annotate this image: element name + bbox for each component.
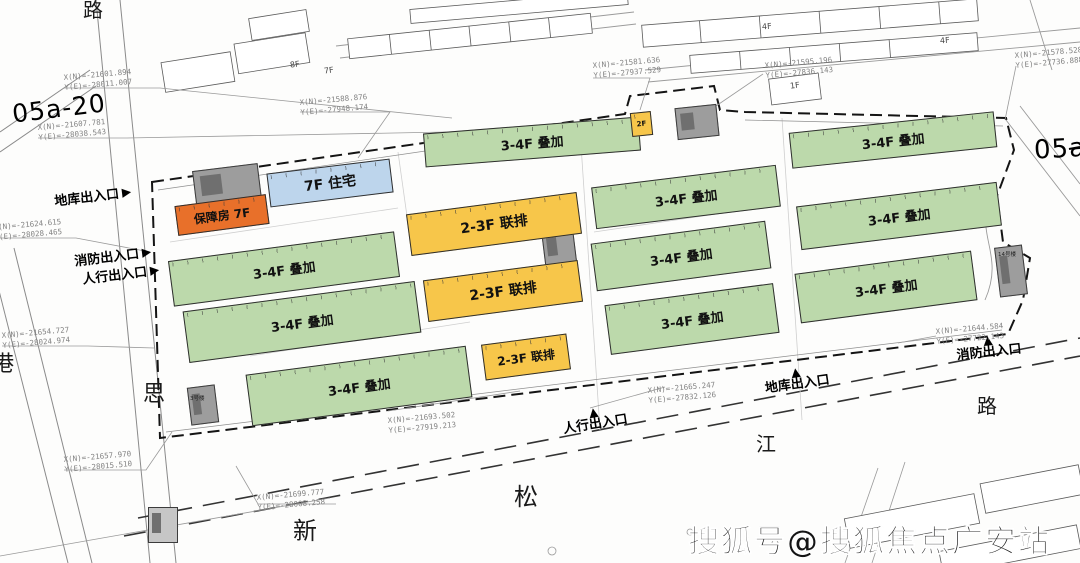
building-label: 7F 住宅 — [303, 170, 357, 196]
floor-label: 8F — [289, 59, 300, 69]
building-label: 3-4F 叠加 — [654, 184, 719, 211]
building-label: 2-3F 联排 — [459, 210, 529, 239]
road-name: 新 — [293, 511, 317, 546]
building-label: 3-4F 叠加 — [649, 242, 714, 269]
building-label: 保障房 7F — [193, 203, 251, 227]
building-label: 3-4F 叠加 — [327, 372, 392, 399]
building-label: 2F — [636, 120, 646, 129]
floor-label: 1F — [789, 80, 800, 90]
floor-label: 4F — [940, 36, 950, 46]
building-label: 2-3F 联排 — [468, 277, 538, 306]
building-label: 3-4F 叠加 — [867, 203, 932, 230]
building-label: 3-4F 叠加 — [854, 273, 919, 300]
building-number-label: 14号楼 — [998, 250, 1016, 258]
arrow-right-icon: ▶ — [141, 244, 152, 259]
utility-building — [674, 104, 719, 140]
road-name: 松 — [514, 477, 538, 512]
building-label: 3-4F 叠加 — [861, 127, 926, 152]
utility-building — [148, 507, 178, 543]
plot-code-right: 05a- — [1033, 132, 1080, 165]
utility-building — [187, 384, 219, 425]
building-townhouse-small: 2F — [630, 111, 653, 137]
road-name: 路 — [83, 0, 103, 23]
road-name: 江 — [756, 428, 776, 457]
floor-label: 7F — [323, 65, 334, 75]
building-label: 2-3F 联排 — [496, 345, 556, 369]
building-label: 3-4F 叠加 — [252, 255, 317, 282]
building-number-label: 3号楼 — [190, 394, 205, 402]
building-label: 3-4F 叠加 — [660, 305, 725, 332]
building-label: 3-4F 叠加 — [500, 130, 564, 154]
road-name: 港 — [0, 346, 14, 378]
arrow-right-icon: ▶ — [121, 184, 132, 199]
arrow-right-icon: ▶ — [149, 262, 160, 277]
building-label: 3-4F 叠加 — [270, 308, 335, 335]
watermark: 搜狐号@搜狐焦点广安站 — [688, 516, 1051, 561]
floor-label: 4F — [762, 22, 772, 32]
road-name: 思 — [143, 376, 165, 408]
road-name: 路 — [977, 390, 997, 419]
site-plan-canvas: 保障房 7F 7F 住宅 3-4F 叠加 3-4F 叠加 3-4F 叠加 3-4… — [0, 0, 1080, 563]
